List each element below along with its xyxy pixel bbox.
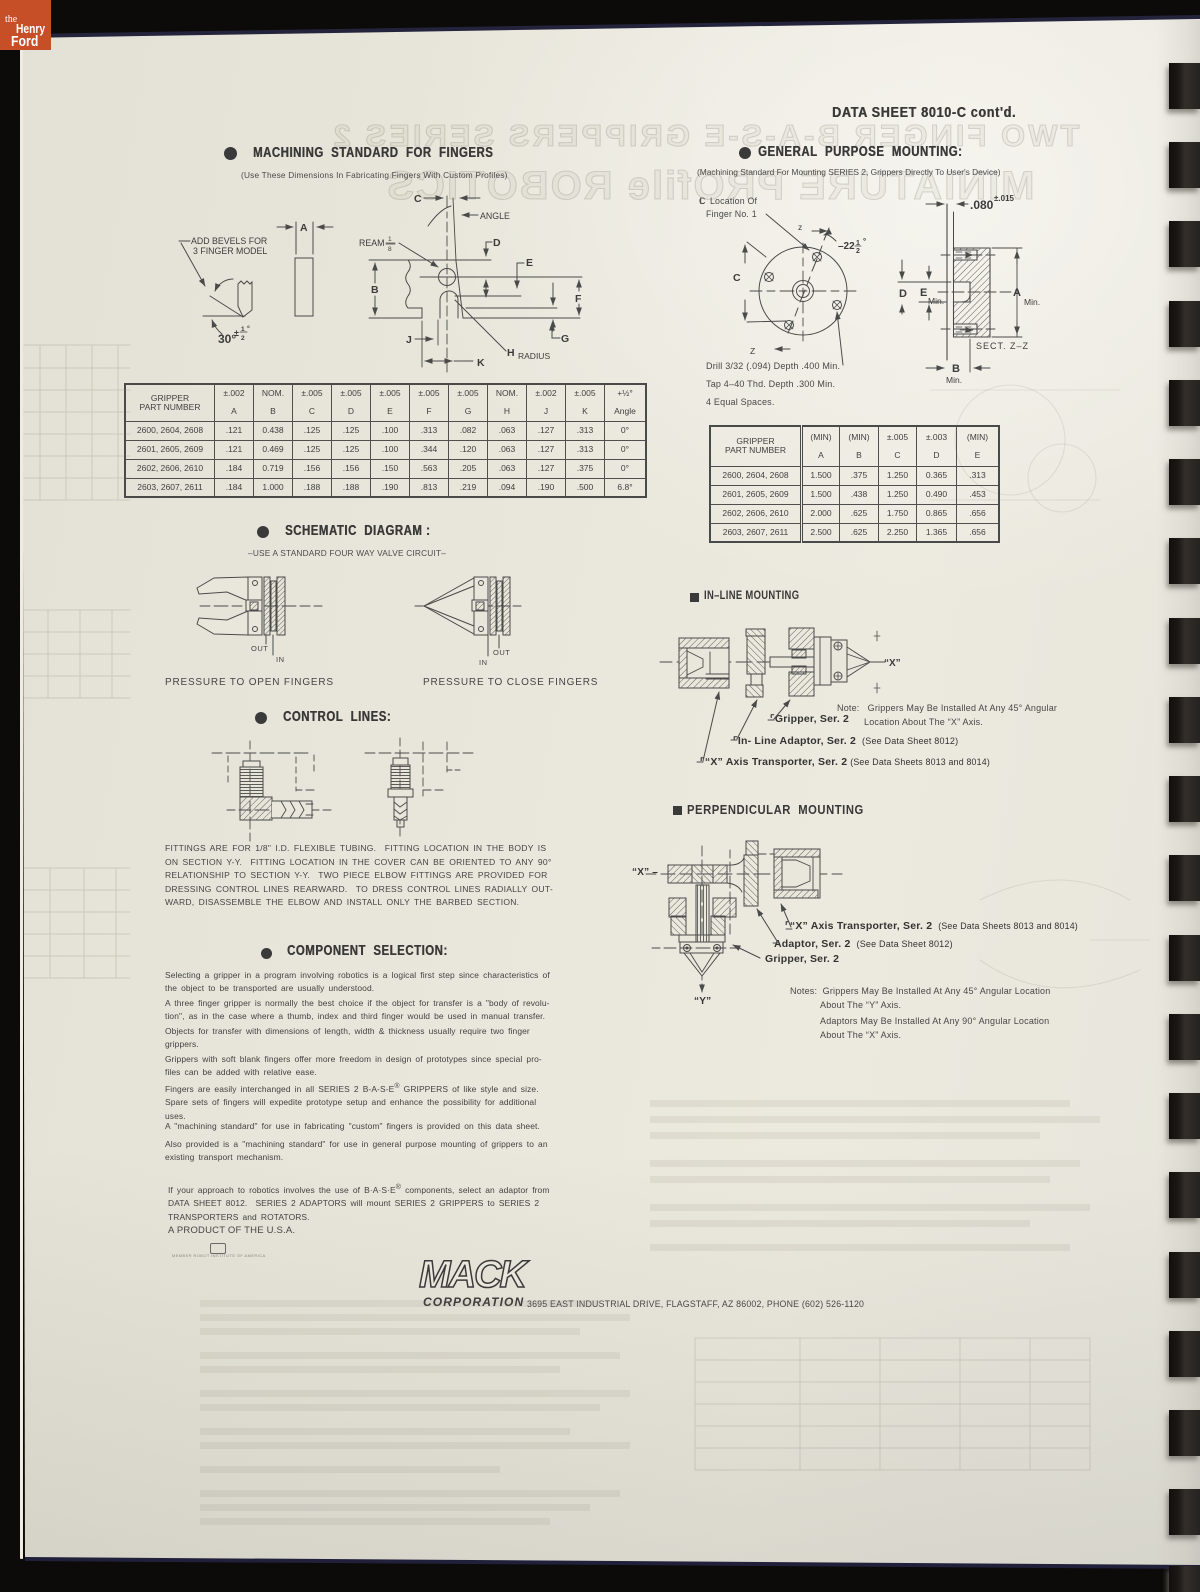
svg-text:Min.: Min. (928, 296, 944, 306)
svg-text:A: A (1013, 287, 1021, 299)
svg-text:2: 2 (241, 335, 245, 342)
svg-text:2: 2 (856, 248, 860, 255)
svg-text:.080: .080 (970, 198, 994, 212)
svg-text:K: K (477, 357, 485, 369)
svg-text:Min.: Min. (946, 375, 962, 385)
svg-text:Z: Z (750, 346, 755, 356)
svg-text:8: 8 (388, 246, 392, 253)
svg-text:±: ± (234, 328, 239, 338)
svg-text:1: 1 (388, 236, 392, 243)
svg-text:H: H (507, 347, 515, 359)
svg-text:IN: IN (276, 655, 285, 664)
svg-text:RADIUS: RADIUS (518, 351, 550, 361)
svg-text:SECT. Z–Z: SECT. Z–Z (976, 341, 1029, 351)
svg-text:B: B (371, 284, 379, 296)
svg-text:Min.: Min. (1024, 297, 1040, 307)
svg-text:E: E (526, 257, 533, 269)
svg-text:3 FINGER MODEL: 3 FINGER MODEL (193, 246, 267, 256)
svg-text:ADD BEVELS FOR: ADD BEVELS FOR (191, 236, 267, 246)
svg-text:OUT: OUT (251, 644, 268, 653)
svg-text:IN: IN (479, 658, 488, 667)
svg-text:C: C (414, 193, 422, 205)
svg-text:A: A (300, 222, 308, 234)
svg-text:F: F (575, 293, 582, 305)
svg-text:D: D (493, 237, 501, 249)
svg-text:C: C (733, 272, 741, 284)
svg-text:“X”: “X” (884, 658, 901, 669)
svg-text:B: B (952, 363, 960, 375)
svg-text:REAM: REAM (359, 238, 384, 248)
svg-text:J: J (406, 334, 412, 346)
svg-text:°: ° (247, 325, 250, 333)
svg-text:z: z (798, 222, 802, 232)
svg-text:ANGLE: ANGLE (480, 211, 510, 221)
svg-text:G: G (561, 333, 569, 345)
svg-text:±.015: ±.015 (994, 194, 1015, 203)
svg-text:E: E (920, 287, 927, 299)
svg-text:–22: –22 (838, 241, 855, 252)
svg-text:D: D (899, 288, 907, 300)
svg-text:°: ° (863, 237, 866, 246)
svg-text:OUT: OUT (493, 648, 510, 657)
